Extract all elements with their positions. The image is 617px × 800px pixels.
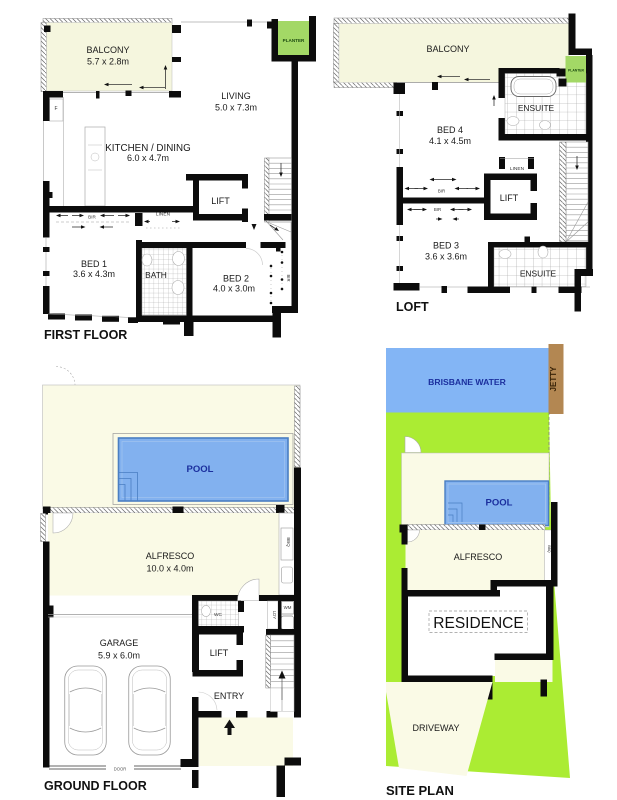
svg-text:BBQ: BBQ: [286, 537, 291, 547]
svg-text:FIRST FLOOR: FIRST FLOOR: [44, 328, 127, 342]
svg-text:BIR: BIR: [434, 207, 441, 212]
svg-text:DRIVEWAY: DRIVEWAY: [412, 723, 459, 733]
svg-text:5.0 x 7.3m: 5.0 x 7.3m: [215, 103, 257, 113]
svg-text:3.6 x 4.3m: 3.6 x 4.3m: [73, 269, 115, 279]
svg-text:DOOR: DOOR: [114, 767, 127, 772]
svg-text:LIVING: LIVING: [221, 91, 251, 101]
svg-text:BBQ: BBQ: [547, 545, 551, 553]
svg-text:BIR: BIR: [88, 215, 96, 220]
svg-text:LINEN: LINEN: [510, 166, 525, 172]
svg-text:BIR: BIR: [286, 275, 291, 282]
svg-text:LIFT: LIFT: [500, 193, 519, 203]
svg-text:5.7 x 2.8m: 5.7 x 2.8m: [87, 57, 129, 67]
svg-text:BED 2: BED 2: [223, 274, 249, 284]
svg-text:LINEN: LINEN: [156, 212, 171, 218]
svg-text:ALFRESCO: ALFRESCO: [454, 552, 503, 562]
svg-text:WM: WM: [284, 605, 292, 610]
svg-text:BED 1: BED 1: [81, 259, 107, 269]
svg-text:GARAGE: GARAGE: [100, 638, 139, 648]
svg-text:5.9 x 6.0m: 5.9 x 6.0m: [98, 651, 140, 661]
svg-text:ENTRY: ENTRY: [214, 691, 244, 701]
svg-text:POOL: POOL: [486, 498, 513, 509]
svg-text:BALCONY: BALCONY: [426, 44, 469, 54]
svg-text:SITE PLAN: SITE PLAN: [386, 783, 454, 798]
svg-text:4.0 x 3.0m: 4.0 x 3.0m: [213, 284, 255, 294]
svg-text:BALCONY: BALCONY: [86, 45, 129, 55]
svg-text:LDY: LDY: [272, 611, 277, 619]
svg-text:JETTY: JETTY: [549, 366, 558, 392]
svg-text:GROUND FLOOR: GROUND FLOOR: [44, 779, 147, 793]
svg-text:PLANTER: PLANTER: [283, 38, 305, 43]
svg-text:RESIDENCE: RESIDENCE: [433, 615, 523, 632]
svg-text:ENSUITE: ENSUITE: [520, 269, 557, 279]
svg-text:BATH: BATH: [145, 270, 167, 280]
svg-text:LIFT: LIFT: [211, 196, 230, 206]
svg-text:BIR: BIR: [438, 189, 445, 194]
svg-text:4.1 x 4.5m: 4.1 x 4.5m: [429, 136, 471, 146]
svg-text:BRISBANE WATER: BRISBANE WATER: [428, 377, 506, 387]
svg-text:ENSUITE: ENSUITE: [518, 103, 555, 113]
svg-text:ALFRESCO: ALFRESCO: [146, 551, 195, 561]
svg-text:6.0 x 4.7m: 6.0 x 4.7m: [127, 153, 169, 163]
svg-text:BED 3: BED 3: [433, 241, 459, 251]
svg-text:POOL: POOL: [187, 464, 214, 475]
svg-text:F: F: [54, 106, 57, 112]
svg-text:LOFT: LOFT: [396, 300, 429, 314]
svg-text:WC: WC: [214, 612, 223, 618]
svg-text:PLANTER: PLANTER: [568, 69, 585, 73]
svg-text:BED 4: BED 4: [437, 125, 463, 135]
svg-text:10.0 x 4.0m: 10.0 x 4.0m: [146, 564, 193, 574]
svg-text:3.6 x 3.6m: 3.6 x 3.6m: [425, 252, 467, 262]
svg-text:LIFT: LIFT: [210, 648, 229, 658]
